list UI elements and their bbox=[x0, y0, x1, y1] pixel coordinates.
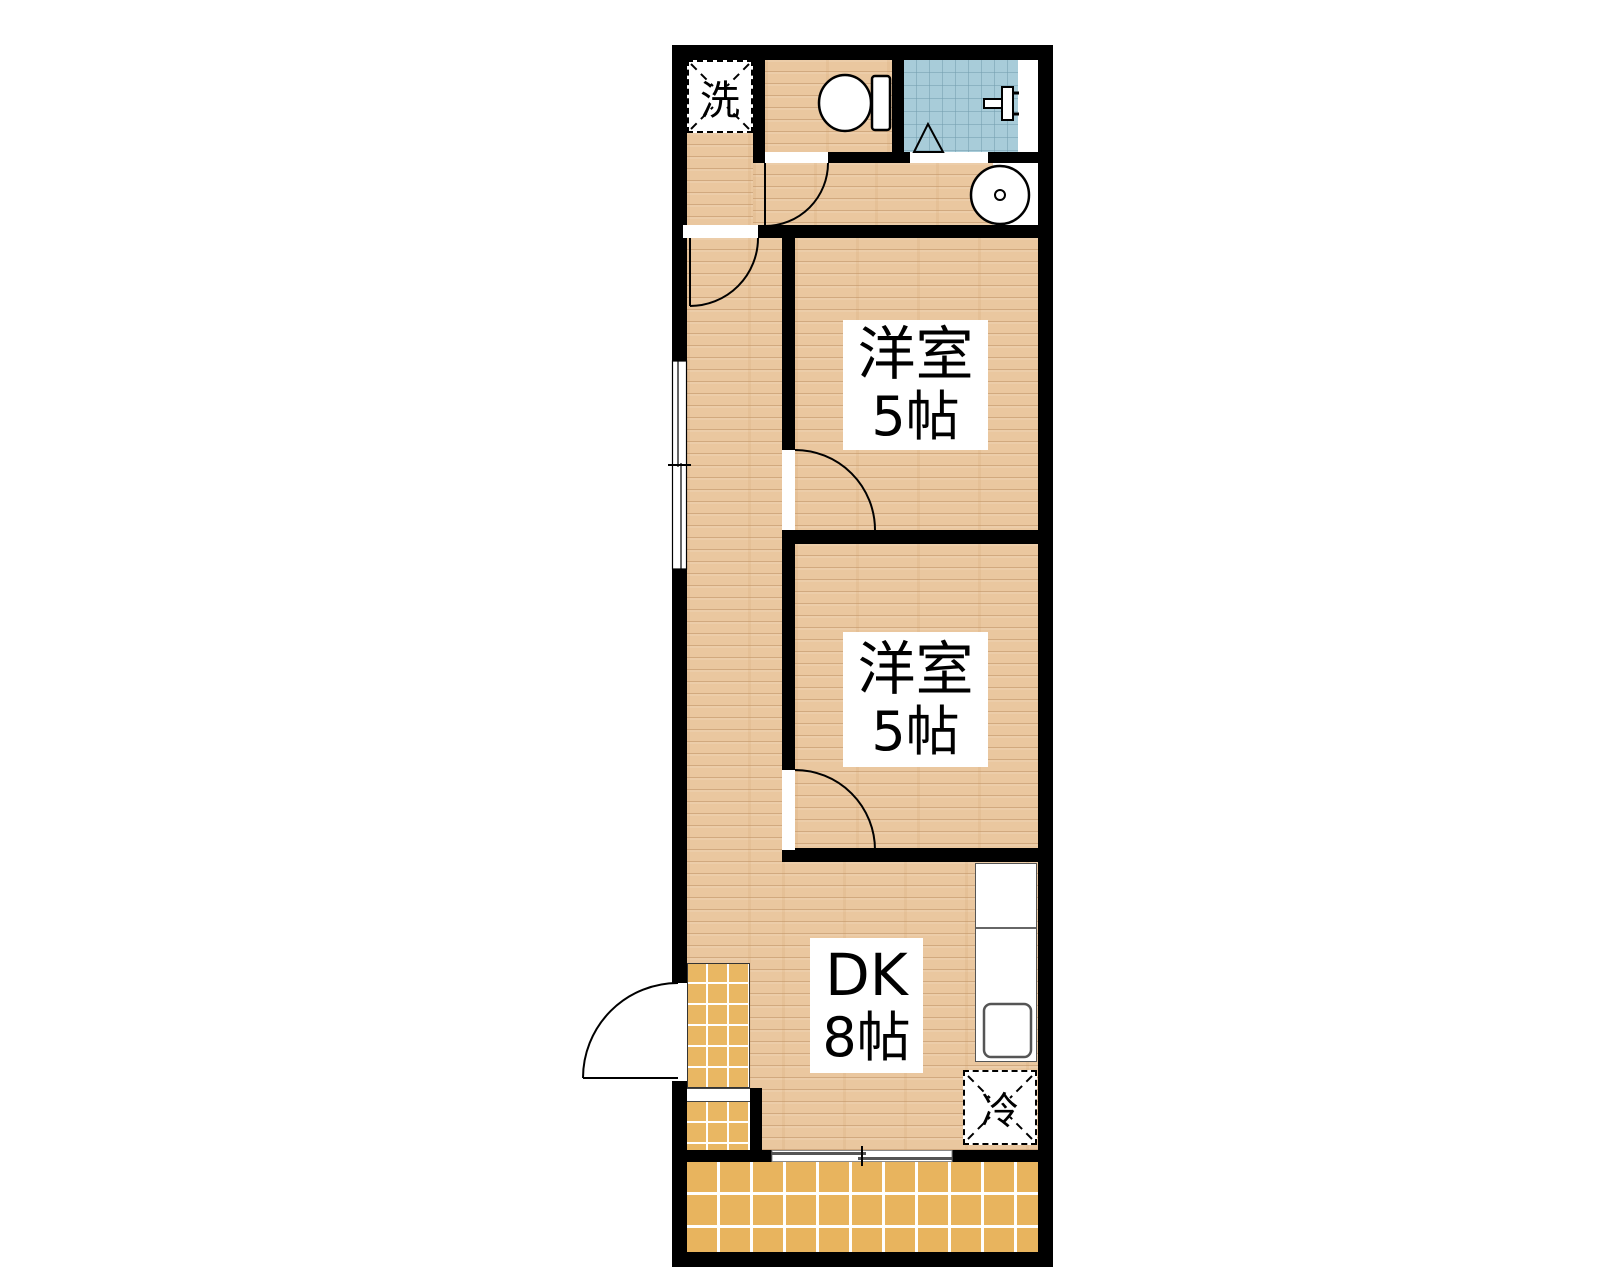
dk-name: DK bbox=[825, 943, 908, 1008]
wall-bottom bbox=[672, 1252, 1053, 1267]
dk-label: DK 8帖 bbox=[810, 938, 923, 1073]
room1-label: 洋室 5帖 bbox=[843, 320, 988, 450]
genkan-step bbox=[687, 1088, 750, 1102]
balcony-floor bbox=[687, 1162, 1038, 1252]
dk-size: 8帖 bbox=[822, 1008, 910, 1068]
toilet-door-opening bbox=[765, 152, 828, 163]
washbasin-counter bbox=[993, 163, 1038, 225]
room1-name: 洋室 bbox=[857, 322, 973, 387]
bathroom-floor bbox=[904, 60, 1018, 152]
washer-label: 洗 bbox=[687, 60, 753, 133]
floor-plan: 洗 洋室 5帖 洋室 5帖 DK 8帖 冷 bbox=[0, 0, 1600, 1280]
room1-door-opening bbox=[782, 450, 795, 530]
corridor-door-opening bbox=[683, 225, 758, 238]
wall-toilet-bath bbox=[892, 60, 904, 163]
room2-label: 洋室 5帖 bbox=[843, 632, 988, 767]
wall-room2-dk bbox=[782, 848, 1038, 862]
porch-tile bbox=[687, 1102, 750, 1150]
room2-door-opening bbox=[782, 770, 795, 850]
bathtub bbox=[1018, 60, 1038, 152]
wall-dk-balcony bbox=[672, 1150, 1038, 1162]
entry-door-opening bbox=[672, 983, 687, 1081]
wall-top bbox=[672, 45, 1053, 60]
bathroom-door-opening bbox=[910, 152, 988, 163]
kitchen-counter bbox=[975, 863, 1037, 1062]
wall-right bbox=[1038, 45, 1053, 1267]
hallway-floor-left bbox=[687, 133, 753, 225]
room1-size: 5帖 bbox=[871, 387, 959, 447]
wall-washer-toilet bbox=[753, 60, 765, 163]
room2-size: 5帖 bbox=[871, 702, 959, 762]
toilet-room-floor bbox=[765, 60, 892, 152]
refrigerator-label: 冷 bbox=[963, 1070, 1037, 1145]
genkan-entry-tile bbox=[687, 963, 750, 1088]
room2-name: 洋室 bbox=[857, 637, 973, 702]
entry-door-arc bbox=[583, 983, 678, 1078]
wall-room1-room2 bbox=[782, 530, 1038, 544]
